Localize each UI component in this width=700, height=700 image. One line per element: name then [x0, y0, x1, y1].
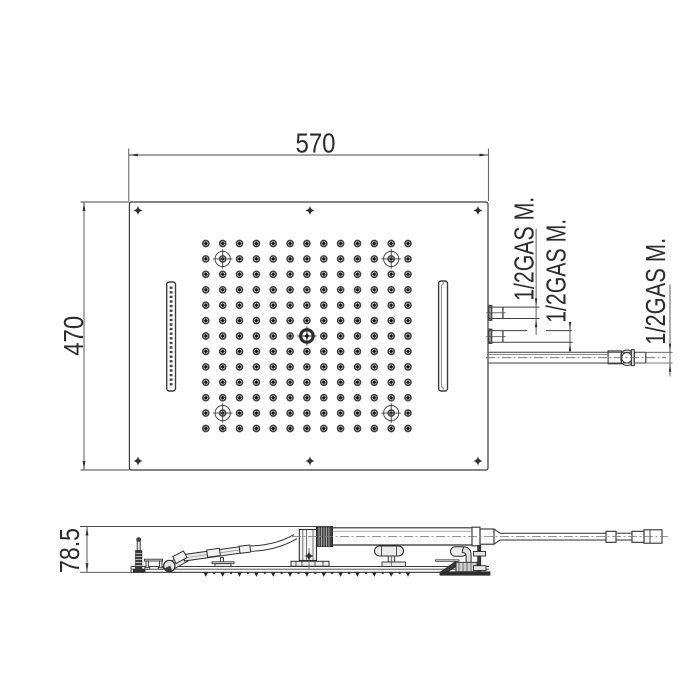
svg-text:1/2GAS M.: 1/2GAS M.: [640, 238, 671, 345]
svg-text:470: 470: [58, 316, 89, 356]
svg-text:78.5: 78.5: [54, 528, 85, 573]
svg-text:1/2GAS M.: 1/2GAS M.: [541, 219, 572, 323]
svg-text:1/2GAS M.: 1/2GAS M.: [509, 197, 540, 301]
svg-text:570: 570: [296, 127, 336, 158]
